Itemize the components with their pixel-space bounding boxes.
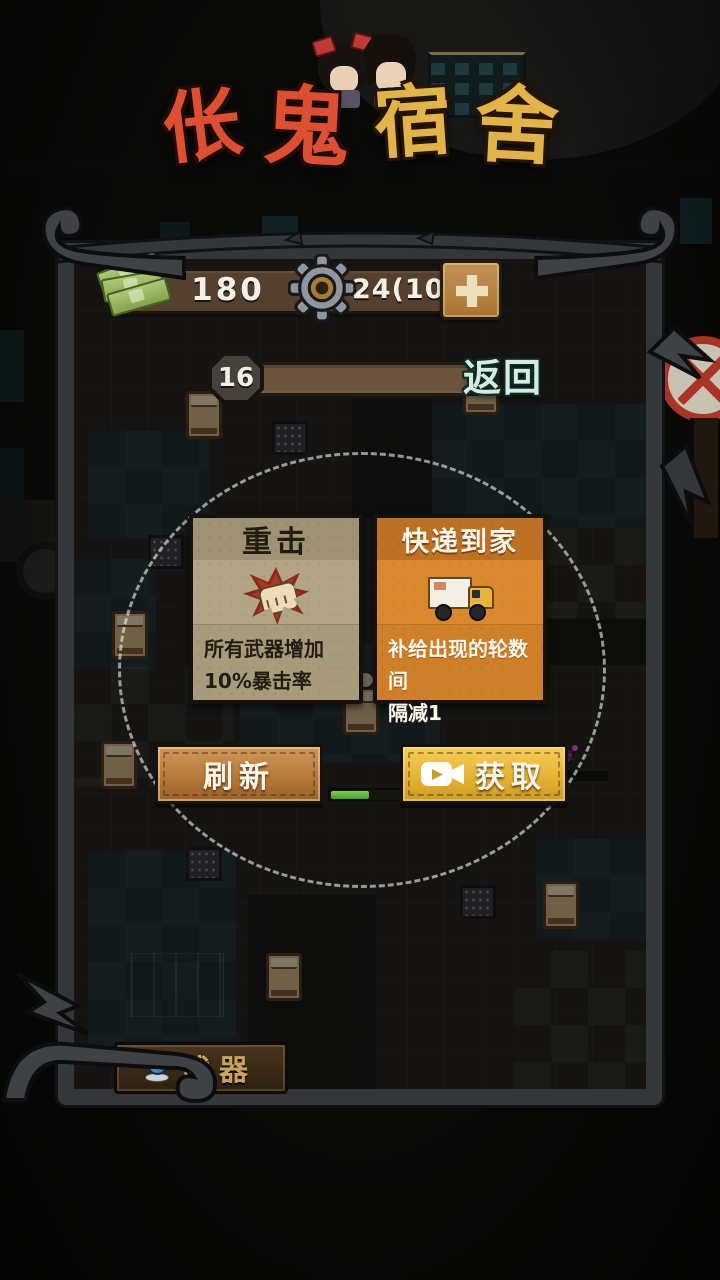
upgrade-card-express-delivery[interactable]: 快递到家 补给出现的轮数间 隔减1	[373, 514, 547, 704]
refresh-label: 刷新	[203, 752, 275, 796]
card-desc-line: 10%暴击率	[204, 665, 348, 697]
frame-bracket-right	[616, 326, 712, 536]
claim-label: 获取	[475, 752, 547, 796]
upgrade-card-heavy-strike[interactable]: 重击 所有武器增加 10%暴击率	[189, 514, 363, 704]
refresh-button[interactable]: 刷新	[155, 744, 323, 804]
game-screen: 伥 鬼 宿 舍	[0, 0, 720, 1280]
card-description: 补给出现的轮数间 隔减1	[377, 624, 543, 700]
frame-claw-top-right	[534, 194, 684, 286]
video-camera-icon	[421, 761, 465, 787]
card-description: 所有武器增加 10%暴击率	[193, 624, 359, 700]
title-char: 舍	[472, 76, 559, 176]
gear-icon	[288, 254, 356, 322]
delivery-truck-icon	[377, 560, 543, 632]
claim-button[interactable]: 获取	[400, 744, 568, 804]
card-desc-line: 所有武器增加	[204, 633, 348, 665]
card-title: 快递到家	[402, 520, 518, 559]
round-badge: 16	[208, 352, 264, 404]
title-char: 伥	[158, 75, 245, 180]
building-window	[680, 198, 712, 244]
card-title: 重击	[242, 517, 310, 561]
game-title: 伥 鬼 宿 舍	[0, 72, 720, 171]
frame-claw-top-left	[36, 194, 186, 286]
round-number: 16	[212, 356, 260, 400]
back-button[interactable]: 返回	[448, 352, 558, 404]
game-logo: 伥 鬼 宿 舍	[0, 0, 720, 190]
building-window	[0, 330, 24, 402]
card-title-band: 快递到家	[377, 518, 543, 560]
frame-claw-bottom-left	[4, 940, 260, 1104]
plus-icon	[456, 275, 488, 307]
health-bar-fill	[331, 791, 369, 799]
add-gears-button[interactable]	[440, 260, 502, 320]
card-desc-line: 隔减1	[388, 697, 532, 729]
fist-impact-icon	[193, 560, 359, 632]
card-desc-line: 补给出现的轮数间	[388, 633, 532, 697]
card-title-band: 重击	[193, 518, 359, 560]
title-char: 宿	[370, 72, 453, 173]
title-char: 鬼	[262, 78, 351, 178]
